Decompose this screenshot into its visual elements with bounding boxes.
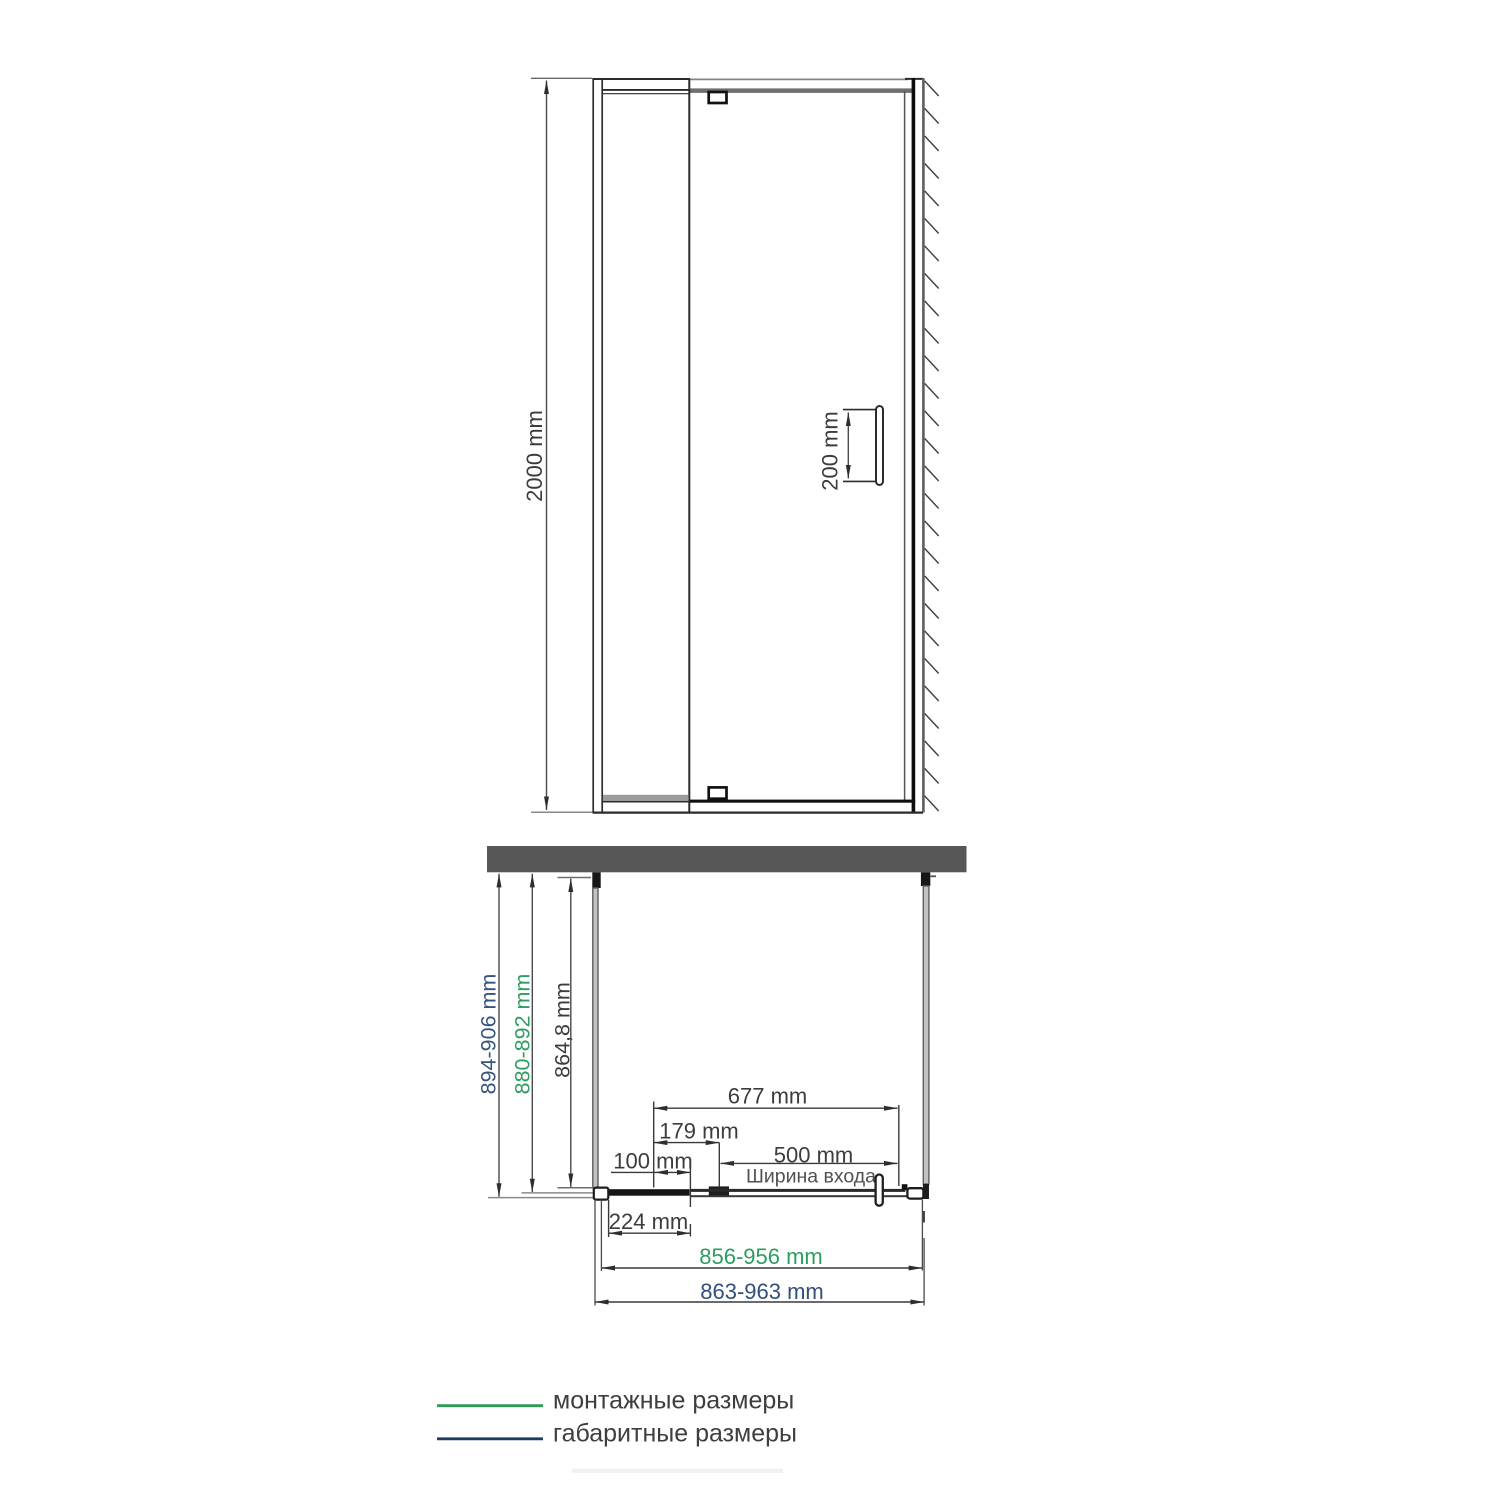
svg-text:200 mm: 200 mm (818, 411, 843, 490)
svg-text:179 mm: 179 mm (659, 1119, 738, 1144)
svg-text:894-906 mm: 894-906 mm (477, 974, 501, 1095)
svg-text:863-963 mm: 863-963 mm (700, 1279, 824, 1304)
svg-text:500 mm: 500 mm (774, 1143, 853, 1168)
svg-text:100 mm: 100 mm (613, 1149, 692, 1174)
svg-text:224 mm: 224 mm (609, 1209, 688, 1234)
svg-text:880-892 mm: 880-892 mm (511, 974, 535, 1095)
svg-text:856-956 mm: 856-956 mm (699, 1244, 823, 1269)
svg-text:Ширина входа: Ширина входа (746, 1166, 876, 1188)
svg-text:монтажные размеры: монтажные размеры (553, 1386, 794, 1414)
svg-text:677 mm: 677 mm (728, 1084, 807, 1109)
svg-text:864,8 mm: 864,8 mm (551, 982, 575, 1078)
svg-text:2000 mm: 2000 mm (522, 410, 547, 502)
svg-text:габаритные размеры: габаритные размеры (553, 1419, 797, 1447)
